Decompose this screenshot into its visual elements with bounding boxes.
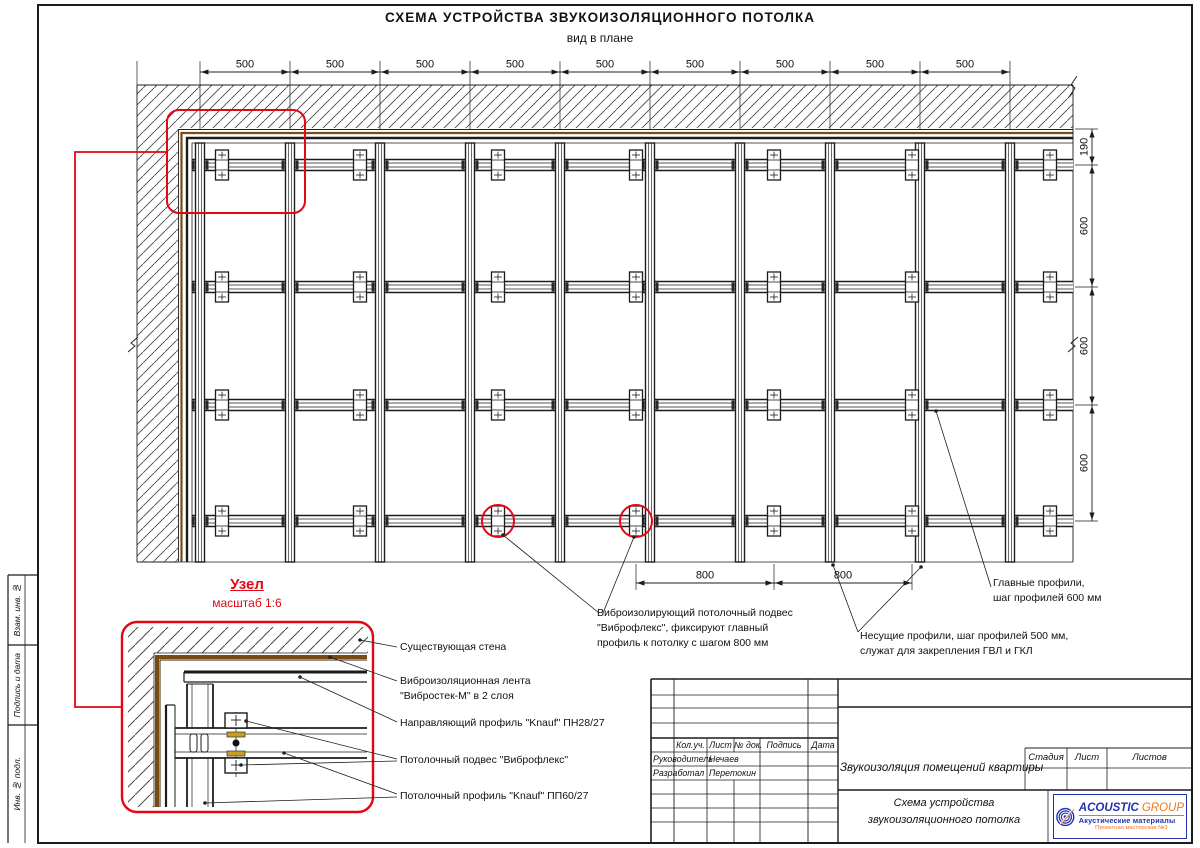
callout-ceiling-hanger: Потолочный подвес "Виброфлекс" xyxy=(400,753,568,768)
detail-title: Узел xyxy=(172,576,322,593)
titleblock-doc-title-line2: звукоизоляционного потолка xyxy=(845,815,1043,826)
titleblock-project: Звукоизоляция помещений квартиры xyxy=(840,763,1023,774)
dim-label: 600 xyxy=(1079,217,1091,235)
annotation-line: служат для закрепления ГВЛ и ГКЛ xyxy=(860,644,1068,659)
dim-label: 500 xyxy=(326,59,344,71)
sidebar-label: Взам. инв. № xyxy=(12,583,22,636)
sidebar-cell-podpis: Подпись и дата xyxy=(8,645,25,725)
callout-text: "Вибростек-М" в 2 слоя xyxy=(400,689,531,704)
dim-label: 500 xyxy=(776,59,794,71)
sidebar-label: Инв. № подл. xyxy=(12,757,22,811)
sidebar-cell-vzam: Взам. инв. № xyxy=(8,575,25,645)
dim-label: 500 xyxy=(506,59,524,71)
annotation-line: Главные профили, xyxy=(993,576,1102,591)
dim-label: 800 xyxy=(696,570,714,582)
callout-text: Существующая стена xyxy=(400,640,506,655)
titleblock-sheet-header: Лист xyxy=(1067,752,1107,763)
annotation-carrier-profiles: Несущие профили, шаг профилей 500 мм, сл… xyxy=(860,629,1068,659)
annotation-line: Несущие профили, шаг профилей 500 мм, xyxy=(860,629,1068,644)
drawing-title: СХЕМА УСТРОЙСТВА ЗВУКОИЗОЛЯЦИОННОГО ПОТО… xyxy=(0,10,1200,25)
titleblock-role-developer: Разработал xyxy=(653,768,704,779)
callout-text: Потолочный подвес "Виброфлекс" xyxy=(400,753,568,768)
titleblock-name-developer: Перетокин xyxy=(709,768,756,779)
titleblock-header-doc: № док. xyxy=(734,740,760,751)
titleblock-header-sign: Подпись xyxy=(760,740,808,751)
callout-text: Направляющий профиль "Knauf" ПН28/27 xyxy=(400,716,605,731)
logo-tagline: Акустические материалы xyxy=(1079,815,1184,825)
titleblock-header-date: Дата xyxy=(808,740,838,751)
dim-label: 500 xyxy=(956,59,974,71)
titleblock-header-kol: Кол.уч. xyxy=(674,740,707,751)
drawing-subtitle: вид в плане xyxy=(0,31,1200,45)
titleblock-stage-header: Стадия xyxy=(1025,752,1067,763)
logo-brand-acoustic: ACOUSTIC xyxy=(1079,802,1139,814)
logo-subtitle: Проектная мастерская №3 xyxy=(1079,825,1184,831)
titleblock-doc-title-line1: Схема устройства xyxy=(845,798,1043,809)
dim-label: 500 xyxy=(596,59,614,71)
callout-guide-profile: Направляющий профиль "Knauf" ПН28/27 xyxy=(400,716,605,731)
sidebar-cell-inv: Инв. № подл. xyxy=(8,725,25,843)
callout-ceiling-profile: Потолочный профиль "Knauf" ПП60/27 xyxy=(400,789,588,804)
detail-scale: масштаб 1:6 xyxy=(172,596,322,610)
titleblock-name-manager: Нечаев xyxy=(709,754,739,765)
callout-text: Виброизоляционная лента xyxy=(400,674,531,689)
dim-label: 190 xyxy=(1079,138,1091,156)
annotation-line: "Виброфлекс", фиксируют главный xyxy=(597,621,793,636)
titleblock-sheets-header: Листов xyxy=(1107,752,1192,763)
annotation-main-profiles: Главные профили, шаг профилей 600 мм xyxy=(993,576,1102,606)
drawing-sheet: 5005005005005005005005005001906006006008… xyxy=(0,0,1200,848)
annotation-line: Виброизолирующий потолочный подвес xyxy=(597,606,793,621)
annotation-line: шаг профилей 600 мм xyxy=(993,591,1102,606)
dim-label: 500 xyxy=(866,59,884,71)
sidebar-label: Подпись и дата xyxy=(12,653,22,717)
callout-text: Потолочный профиль "Knauf" ПП60/27 xyxy=(400,789,588,804)
vibration-hangers xyxy=(216,150,1057,536)
dim-label: 600 xyxy=(1079,337,1091,355)
dim-label: 500 xyxy=(236,59,254,71)
carrier-profiles xyxy=(196,143,1015,562)
dim-label: 500 xyxy=(416,59,434,71)
dim-label: 600 xyxy=(1079,454,1091,472)
callout-existing-wall: Существующая стена xyxy=(400,640,506,655)
acoustic-group-logo: ACOUSTIC GROUP Акустические материалы Пр… xyxy=(1053,794,1187,839)
annotation-line: профиль к потолку с шагом 800 мм xyxy=(597,636,793,651)
annotation-hanger: Виброизолирующий потолочный подвес "Вибр… xyxy=(597,606,793,651)
titleblock-header-list: Лист xyxy=(707,740,734,751)
wall-hatch xyxy=(137,85,1073,562)
titleblock-role-manager: Руководитель xyxy=(653,754,713,765)
detail-node xyxy=(122,622,397,812)
main-profiles xyxy=(192,160,1074,527)
acoustic-group-logo-icon xyxy=(1056,798,1076,836)
callout-vibration-tape: Виброизоляционная лента "Вибростек-М" в … xyxy=(400,674,531,703)
dim-label: 500 xyxy=(686,59,704,71)
logo-brand-group: GROUP xyxy=(1142,802,1184,814)
